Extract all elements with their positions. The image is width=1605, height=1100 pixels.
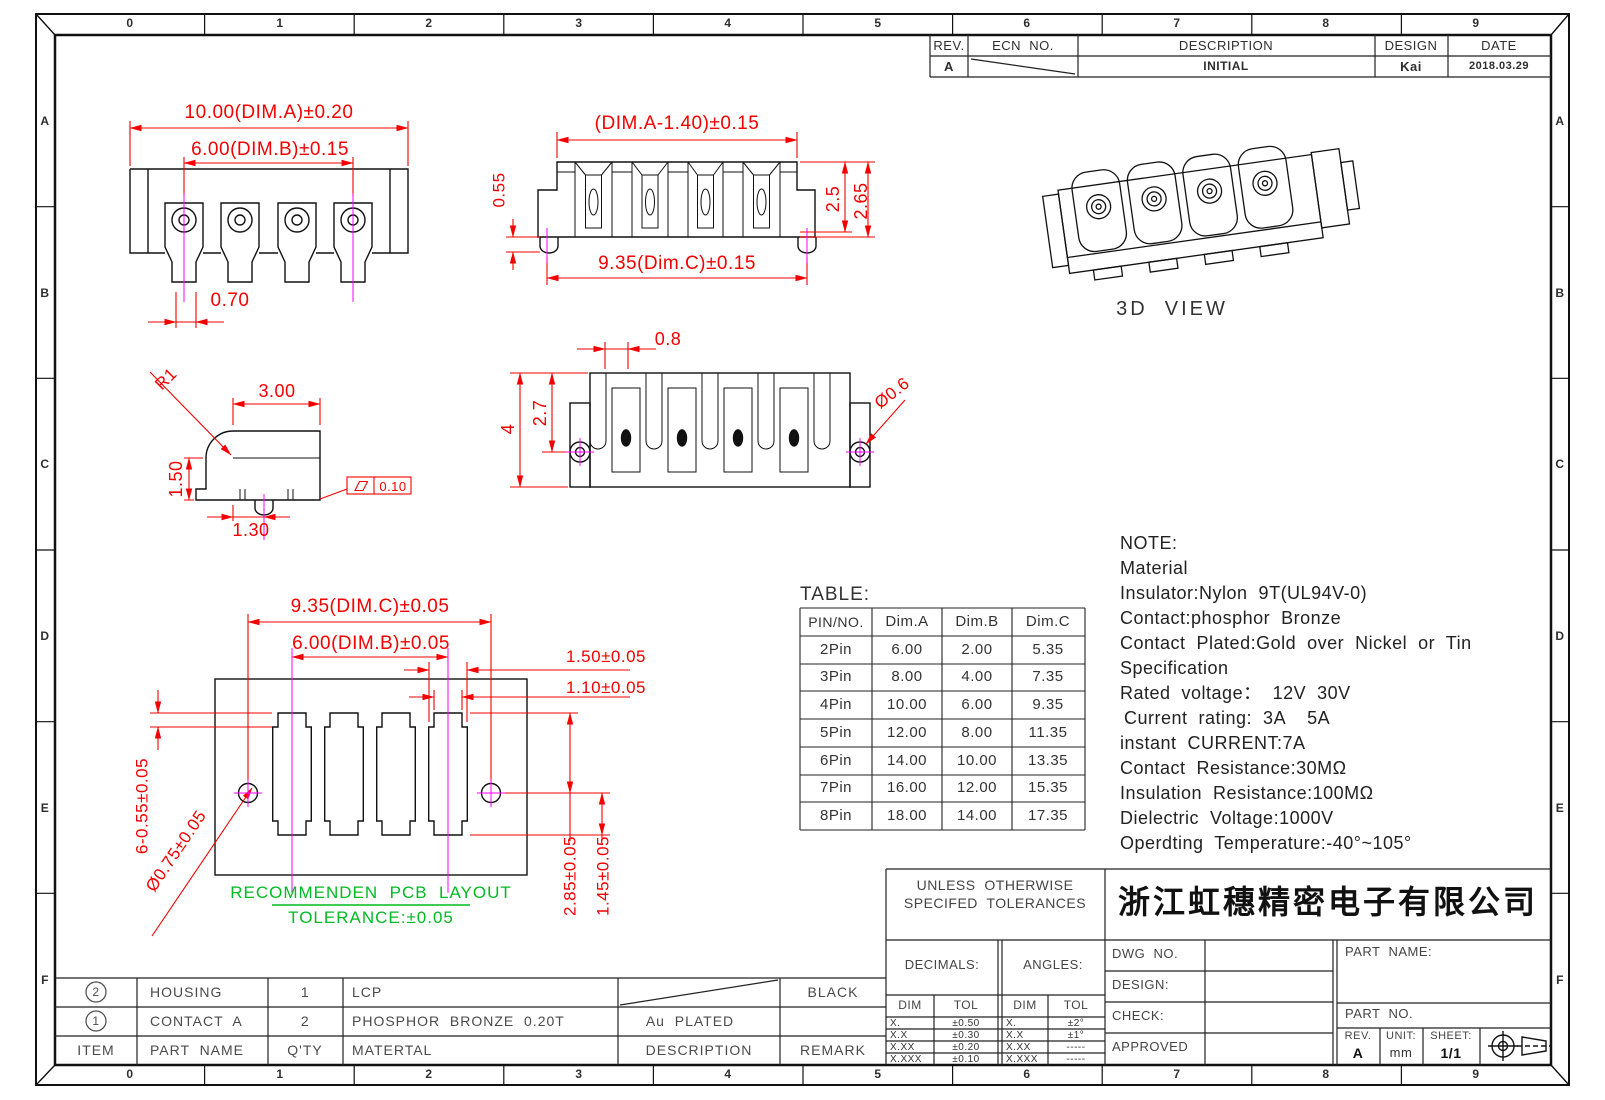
design-label: DESIGN:	[1112, 978, 1169, 991]
tolerance-note-line2: SPECIFED TOLERANCES	[904, 896, 1086, 910]
dim-detail-pin-offset: 1.30	[232, 521, 269, 539]
decimals-dim: X.X	[890, 1031, 908, 1041]
date-header: DATE	[1481, 39, 1517, 52]
dim-col-header: DIM	[898, 999, 922, 1011]
border-row-label: F	[1556, 974, 1564, 986]
pin-table-cell: 15.35	[1028, 780, 1068, 795]
border-col-label: 8	[1322, 1068, 1329, 1080]
border-col-label: 3	[575, 1068, 582, 1080]
dim-detail-height: 1.50	[167, 460, 185, 497]
third-angle-projection-icon	[1488, 1031, 1551, 1061]
bom-qty: 1	[301, 985, 309, 999]
angles-tol: -----	[1066, 1043, 1085, 1053]
company-name: 浙江虹穗精密电子有限公司	[1118, 886, 1538, 918]
note-line: Contact Plated:Gold over Nickel or Tin	[1120, 634, 1472, 652]
border-col-label: 8	[1322, 17, 1329, 29]
rev-date: 2018.03.29	[1469, 61, 1529, 72]
pin-table-cell: 10.00	[957, 753, 997, 768]
rev-header: REV.	[933, 39, 964, 52]
rev-label: REV.	[1345, 1031, 1372, 1042]
dim-top-slot: 0.8	[655, 330, 682, 348]
angles-dim: X.X	[1006, 1031, 1024, 1041]
pin-table-cell: 10.00	[887, 697, 927, 712]
bom-header: PART NAME	[150, 1043, 244, 1057]
dim-side-height-inner: 2.5	[824, 186, 842, 213]
border-col-label: 6	[1023, 17, 1030, 29]
note-line: Contact Resistance:30MΩ	[1120, 759, 1347, 777]
border-row-label: A	[40, 115, 49, 127]
bom-qty: 2	[301, 1014, 309, 1028]
border-col-label: 7	[1173, 1068, 1180, 1080]
dim-side-top: (DIM.A-1.40)±0.15	[595, 114, 760, 133]
pin-table-cell: 8Pin	[820, 808, 852, 823]
bom-header: REMARK	[800, 1043, 866, 1057]
border-col-label: 5	[874, 1068, 881, 1080]
note-line: NOTE:	[1120, 534, 1178, 552]
description-header: DESCRIPTION	[1179, 39, 1273, 52]
border-col-label: 1	[276, 1068, 283, 1080]
pin-table-cell: 4.00	[961, 669, 992, 684]
decimals-tol: ±0.50	[952, 1019, 979, 1029]
pin-table-cell: 16.00	[887, 780, 927, 795]
iso-view-label: 3D VIEW	[1116, 299, 1228, 319]
dim-col-header: DIM	[1013, 999, 1037, 1011]
tol-col-header: TOL	[954, 999, 979, 1011]
dim-front-overall: 10.00(DIM.A)±0.20	[185, 103, 354, 122]
pcb-caption: RECOMMENDEN PCB LAYOUT	[230, 884, 512, 901]
decimals-dim: X.XX	[890, 1043, 915, 1053]
pin-table-cell: 12.00	[887, 725, 927, 740]
dim-side-height-outer: 2.65	[852, 182, 870, 219]
border-col-label: 1	[276, 17, 283, 29]
pin-table-cell: 13.35	[1028, 753, 1068, 768]
approved-label: APPROVED	[1112, 1040, 1188, 1053]
decimals-tol: ±0.20	[952, 1043, 979, 1053]
decimals-dim: X.XXX	[890, 1055, 922, 1065]
ecn-header: ECN NO.	[992, 39, 1054, 52]
angles-dim: X.	[1006, 1019, 1016, 1029]
pin-table-cell: 2.00	[961, 642, 992, 657]
note-line: Rated voltage： 12V 30V	[1120, 684, 1351, 702]
border-row-label: E	[1556, 802, 1565, 814]
bom-part-name: CONTACT A	[150, 1014, 243, 1028]
rev-value: A	[1353, 1046, 1364, 1060]
pin-table-cell: 3Pin	[820, 669, 852, 684]
centerlines	[184, 193, 874, 893]
dim-pcb-pad-h: 6-0.55±0.05	[134, 758, 151, 854]
bom-part-name: HOUSING	[150, 985, 222, 999]
border-row-label: C	[1555, 458, 1564, 470]
pin-table-header: Dim.B	[955, 614, 998, 629]
border-col-label: 4	[724, 17, 731, 29]
sheet-value: 1/1	[1441, 1046, 1462, 1060]
dim-pcb-dist2: 1.45±0.05	[595, 836, 612, 916]
bom-header: DESCRIPTION	[646, 1043, 753, 1057]
pin-table-cell: 6.00	[961, 697, 992, 712]
decimals-tol: ±0.30	[952, 1031, 979, 1041]
dim-pcb-pad-w2: 1.10±0.05	[566, 679, 646, 696]
pin-table-cell: 4Pin	[820, 697, 852, 712]
pin-table-title: TABLE:	[800, 585, 870, 604]
pin-table-cell: 14.00	[887, 753, 927, 768]
flatness-value: 0.10	[379, 480, 406, 493]
note-line: Insulator:Nylon 9T(UL94V-0)	[1120, 584, 1367, 602]
side-view-geometry	[538, 162, 816, 253]
part-no-label: PART NO.	[1345, 1007, 1413, 1020]
detail-view-geometry	[196, 431, 320, 515]
note-line: Contact:phosphor Bronze	[1120, 609, 1341, 627]
border-row-label: E	[41, 802, 50, 814]
dim-side-pin-height: 0.55	[491, 172, 508, 207]
border-col-label: 4	[724, 1068, 731, 1080]
border-row-label: D	[1555, 630, 1564, 642]
border-row-label: B	[1555, 287, 1564, 299]
angles-dim: X.XXX	[1006, 1055, 1038, 1065]
pin-table-cell: 11.35	[1029, 725, 1068, 740]
front-view-geometry	[130, 169, 408, 282]
angles-dim: X.XX	[1006, 1043, 1031, 1053]
unit-label: UNIT:	[1386, 1031, 1416, 1042]
dwg-no-label: DWG NO.	[1112, 947, 1178, 960]
border-row-label: A	[1555, 115, 1564, 127]
border-row-label: D	[40, 630, 49, 642]
part-name-label: PART NAME:	[1345, 945, 1432, 958]
border-row-label: F	[41, 974, 49, 986]
design-header: DESIGN	[1385, 39, 1438, 52]
sheet-label: SHEET:	[1430, 1031, 1472, 1042]
border-col-label: 9	[1472, 17, 1479, 29]
note-line: Operdting Temperature:-40°~105°	[1120, 834, 1412, 852]
pin-table-cell: 7Pin	[820, 780, 852, 795]
bom-item-number: 1	[92, 1015, 99, 1027]
dim-detail-width: 3.00	[258, 382, 295, 400]
dim-front-pitch: 6.00(DIM.B)±0.15	[191, 140, 349, 159]
angles-tol: ±1°	[1068, 1031, 1085, 1041]
bom-header: MATERTAL	[352, 1043, 432, 1057]
border-col-label: 2	[425, 1068, 432, 1080]
pin-table-cell: 14.00	[957, 808, 997, 823]
border-col-label: 5	[874, 17, 881, 29]
border-row-label: B	[40, 287, 49, 299]
pcb-tolerance-caption: TOLERANCE:±0.05	[288, 909, 454, 926]
dim-top-outer: 4	[499, 424, 517, 435]
bom-material: PHOSPHOR BRONZE 0.20T	[352, 1014, 565, 1028]
angles-label: ANGLES:	[1023, 958, 1083, 971]
note-line: instant CURRENT:7A	[1120, 734, 1306, 752]
rev-designer: Kai	[1400, 60, 1422, 73]
pin-table-cell: 7.35	[1032, 669, 1063, 684]
note-line: Insulation Resistance:100MΩ	[1120, 784, 1374, 802]
angles-tol: -----	[1066, 1055, 1085, 1065]
note-line: Specification	[1120, 659, 1229, 677]
pin-table-cell: 18.00	[887, 808, 927, 823]
bom-material: LCP	[352, 985, 382, 999]
pin-table-cell: 9.35	[1032, 697, 1063, 712]
top-view-geometry	[570, 373, 870, 487]
pin-table-cell: 5.35	[1032, 642, 1063, 657]
note-line: Current rating: 3A 5A	[1124, 709, 1330, 727]
border-col-label: 6	[1023, 1068, 1030, 1080]
border-col-label: 9	[1472, 1068, 1479, 1080]
bom-item-number: 2	[92, 986, 99, 998]
bom-header: Q'TY	[287, 1043, 322, 1057]
pin-table-cell: 17.35	[1028, 808, 1068, 823]
check-label: CHECK:	[1112, 1009, 1164, 1022]
tol-col-header: TOL	[1064, 999, 1089, 1011]
border-col-label: 0	[126, 17, 133, 29]
dim-pcb-dist1: 2.85±0.05	[562, 836, 579, 916]
rev-description: INITIAL	[1203, 60, 1249, 72]
dim-pcb-b: 6.00(DIM.B)±0.05	[292, 634, 450, 653]
pin-table-header: PIN/NO.	[808, 615, 864, 629]
pin-table-header: Dim.A	[885, 614, 928, 629]
note-line: Dielectric Voltage:1000V	[1120, 809, 1334, 827]
dim-pcb-c: 9.35(DIM.C)±0.05	[291, 597, 450, 616]
rev-value: A	[944, 60, 954, 73]
pin-table-cell: 2Pin	[820, 642, 852, 657]
pin-table-header: Dim.C	[1026, 614, 1070, 629]
drawing-line-art	[0, 0, 1605, 1100]
decimals-tol: ±0.10	[952, 1055, 979, 1065]
dim-front-slot: 0.70	[211, 291, 250, 310]
sheet-frame	[36, 14, 1569, 1085]
border-col-label: 2	[425, 17, 432, 29]
bom-header: ITEM	[77, 1043, 114, 1057]
pin-table-cell: 8.00	[891, 669, 922, 684]
dim-pcb-pad-w: 1.50±0.05	[566, 648, 646, 665]
pin-table-cell: 6Pin	[820, 753, 852, 768]
angles-tol: ±2°	[1068, 1019, 1085, 1029]
iso-view-geometry	[1040, 135, 1364, 285]
decimals-dim: X.	[890, 1019, 900, 1029]
bom-description: Au PLATED	[646, 1014, 734, 1028]
decimals-label: DECIMALS:	[905, 958, 980, 971]
dim-top-inner: 2.7	[531, 400, 549, 427]
pin-table-cell: 5Pin	[820, 725, 852, 740]
dim-side-bottom: 9.35(Dim.C)±0.15	[598, 254, 756, 273]
pin-table-cell: 12.00	[957, 780, 997, 795]
border-col-label: 7	[1173, 17, 1180, 29]
engineering-drawing-sheet: 0 1 2 3 4 5 6 7 8 9 0 1 2 3 4 5 6 7 8 9 …	[0, 0, 1605, 1100]
border-row-label: C	[40, 458, 49, 470]
pin-table-cell: 6.00	[891, 642, 922, 657]
bom-remark: BLACK	[808, 985, 859, 999]
note-line: Material	[1120, 559, 1188, 577]
pcb-layout-geometry	[215, 679, 527, 875]
unit-value: mm	[1390, 1046, 1413, 1059]
border-col-label: 0	[126, 1068, 133, 1080]
pin-table-cell: 8.00	[961, 725, 992, 740]
tolerance-note-line1: UNLESS OTHERWISE	[917, 878, 1074, 892]
border-col-label: 3	[575, 17, 582, 29]
